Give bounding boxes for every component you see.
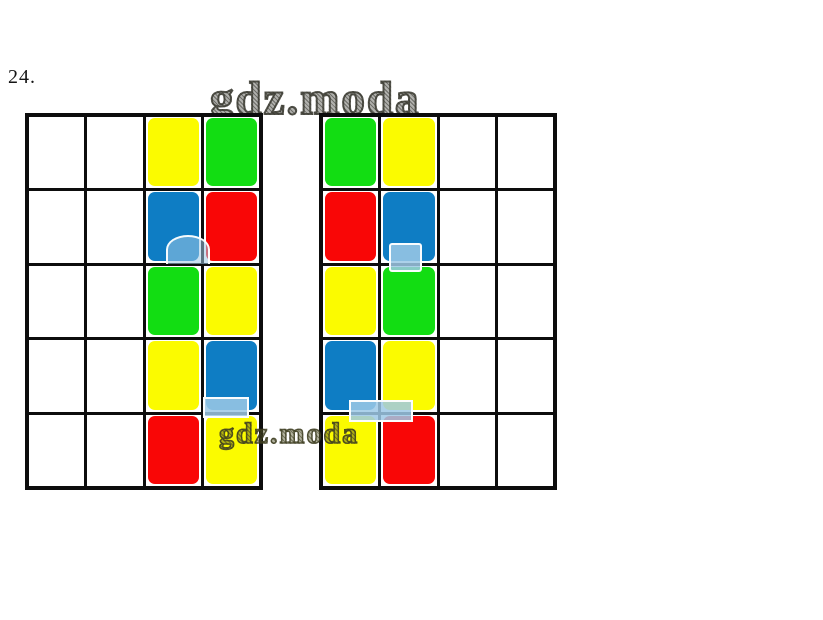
scan-artifact-rect xyxy=(349,400,413,422)
green-color-fill xyxy=(383,267,434,335)
grid-cell-white xyxy=(498,340,553,411)
grid-cell-yellow xyxy=(146,340,201,411)
grid-cell-white xyxy=(440,340,495,411)
grid-cell-yellow xyxy=(146,117,201,188)
grid-cell-white xyxy=(440,415,495,486)
grid-cell-white xyxy=(87,117,142,188)
grid-cell-green xyxy=(146,266,201,337)
grid-cell-white xyxy=(29,117,84,188)
yellow-color-fill xyxy=(148,118,199,186)
grid-cell-white xyxy=(87,415,142,486)
scanned-workbook-page: 24. gdz.moda gdz.moda xyxy=(0,0,823,620)
scan-artifact-rect xyxy=(203,397,249,418)
grid-cell-white xyxy=(498,415,553,486)
grid-cell-green xyxy=(323,117,378,188)
yellow-color-fill xyxy=(325,416,376,484)
grid-cell-white xyxy=(29,415,84,486)
grid-cell-white xyxy=(87,191,142,262)
grid-cell-white xyxy=(498,191,553,262)
scan-artifact-rect xyxy=(389,243,422,272)
grid-cell-white xyxy=(440,117,495,188)
exercise-number-label: 24. xyxy=(8,66,36,89)
grid-cell-white xyxy=(87,266,142,337)
yellow-color-fill xyxy=(148,341,199,409)
grid-cell-red xyxy=(204,191,259,262)
scan-artifact-arc xyxy=(166,235,210,264)
grid-cell-white xyxy=(498,266,553,337)
yellow-color-fill xyxy=(325,267,376,335)
red-color-fill xyxy=(383,416,434,484)
yellow-color-fill xyxy=(206,416,257,484)
grid-cell-white xyxy=(29,266,84,337)
grid-cell-red xyxy=(146,415,201,486)
grid-cell-white xyxy=(87,340,142,411)
grid-cell-yellow xyxy=(323,415,378,486)
yellow-color-fill xyxy=(383,118,434,186)
red-color-fill xyxy=(148,416,199,484)
yellow-color-fill xyxy=(206,267,257,335)
grid-cell-white xyxy=(498,117,553,188)
green-color-fill xyxy=(148,267,199,335)
grid-cell-yellow xyxy=(381,117,436,188)
red-color-fill xyxy=(206,192,257,260)
grid-cell-white xyxy=(440,191,495,262)
grid-cell-yellow xyxy=(204,266,259,337)
grid-cell-yellow xyxy=(323,266,378,337)
grid-cell-yellow xyxy=(204,415,259,486)
green-color-fill xyxy=(325,118,376,186)
left-pattern-grid xyxy=(25,113,263,490)
red-color-fill xyxy=(325,192,376,260)
right-pattern-grid-mirror xyxy=(319,113,557,490)
grid-cell-red xyxy=(381,415,436,486)
grid-cell-green xyxy=(204,117,259,188)
green-color-fill xyxy=(206,118,257,186)
grid-cell-white xyxy=(440,266,495,337)
grid-cell-green xyxy=(381,266,436,337)
grid-cell-white xyxy=(29,191,84,262)
grid-cell-white xyxy=(29,340,84,411)
grid-cell-red xyxy=(323,191,378,262)
